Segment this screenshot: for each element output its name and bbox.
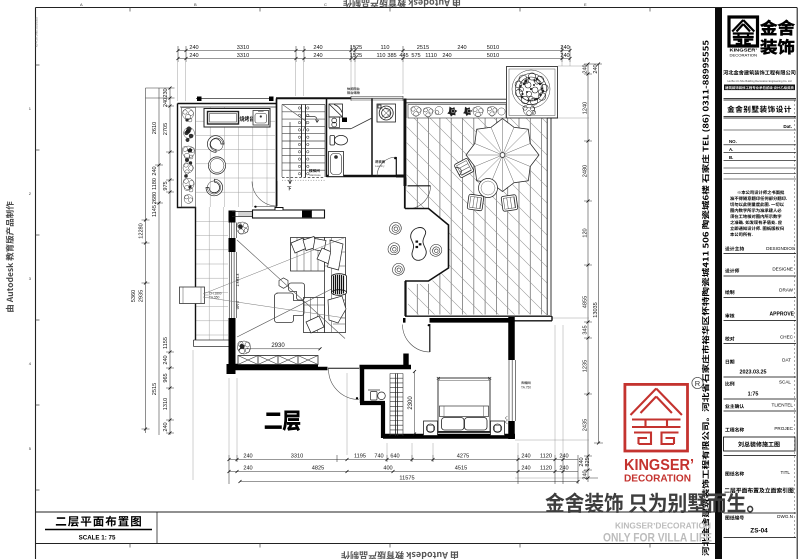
svg-text:B.: B. xyxy=(729,155,733,160)
svg-text:SCALE 1: 75: SCALE 1: 75 xyxy=(79,535,116,542)
svg-text:240: 240 xyxy=(243,454,252,460)
svg-text:11575: 11575 xyxy=(399,476,414,482)
svg-text:4825: 4825 xyxy=(312,466,324,472)
svg-text:2435: 2435 xyxy=(583,419,589,431)
svg-text:400: 400 xyxy=(383,466,392,472)
svg-text:1525: 1525 xyxy=(350,45,362,51)
svg-text:PROJEC: PROJEC xyxy=(774,426,793,431)
svg-text:KINGSERʼ: KINGSERʼ xyxy=(624,457,694,474)
svg-text:1180: 1180 xyxy=(152,178,158,190)
svg-text:240: 240 xyxy=(189,45,198,51)
svg-text:240: 240 xyxy=(163,98,169,107)
svg-text:1:75: 1:75 xyxy=(748,392,759,398)
svg-text:2300: 2300 xyxy=(408,396,414,410)
svg-text:385: 385 xyxy=(387,53,396,59)
svg-text:1240: 1240 xyxy=(583,102,589,114)
svg-text:Staircase: Staircase xyxy=(309,173,321,177)
svg-text:12280: 12280 xyxy=(139,223,145,239)
svg-text:ZS-04: ZS-04 xyxy=(750,528,768,535)
svg-text:KINGSERʼDECORATION: KINGSERʼDECORATION xyxy=(615,521,711,531)
svg-text:240: 240 xyxy=(560,45,569,51)
svg-text:4275: 4275 xyxy=(457,454,469,460)
svg-text:240: 240 xyxy=(152,166,158,175)
svg-text:4855: 4855 xyxy=(583,296,589,308)
svg-text:TA.750: TA.750 xyxy=(521,386,531,390)
svg-text:240: 240 xyxy=(163,355,169,364)
svg-text:1155: 1155 xyxy=(163,337,169,349)
svg-text:965: 965 xyxy=(163,373,169,382)
svg-text:740: 740 xyxy=(374,454,383,460)
svg-text:DRAW: DRAW xyxy=(779,288,794,293)
svg-text:640: 640 xyxy=(390,454,399,460)
svg-text:SCAL: SCAL xyxy=(779,380,791,385)
svg-text:5010: 5010 xyxy=(487,53,499,59)
svg-text:2610: 2610 xyxy=(152,122,158,134)
svg-text:A: A xyxy=(80,2,83,7)
svg-text:R: R xyxy=(695,379,701,388)
svg-text:445: 445 xyxy=(399,53,408,59)
svg-text:975: 975 xyxy=(163,181,169,190)
svg-text:B: B xyxy=(194,2,197,7)
svg-text:1145: 1145 xyxy=(152,205,158,217)
svg-text:240: 240 xyxy=(243,466,252,472)
svg-text:3310: 3310 xyxy=(291,454,303,460)
svg-text:TITL: TITL xyxy=(781,470,791,475)
svg-text:240: 240 xyxy=(457,45,466,51)
svg-text:2480: 2480 xyxy=(583,165,589,177)
svg-text:1525: 1525 xyxy=(350,53,362,59)
svg-text:DECORATION: DECORATION xyxy=(624,474,691,485)
svg-text:110: 110 xyxy=(377,53,386,59)
svg-text:3310: 3310 xyxy=(237,53,249,59)
svg-text:2930: 2930 xyxy=(271,343,285,349)
svg-text:DESIGNDIOS: DESIGNDIOS xyxy=(766,246,795,251)
svg-text:240: 240 xyxy=(593,64,599,73)
svg-text:NO.: NO. xyxy=(729,139,737,144)
svg-text:1235: 1235 xyxy=(583,360,589,372)
svg-text:240: 240 xyxy=(559,454,568,460)
svg-text:240: 240 xyxy=(442,53,451,59)
svg-text:825: 825 xyxy=(585,457,591,466)
svg-text:1120: 1120 xyxy=(540,454,552,460)
svg-text:DECORATION: DECORATION xyxy=(730,54,758,58)
svg-text:2680: 2680 xyxy=(152,192,158,204)
svg-text:Laundry: Laundry xyxy=(375,164,385,168)
svg-text:240: 240 xyxy=(163,422,169,431)
svg-text:240: 240 xyxy=(560,53,569,59)
svg-text:575: 575 xyxy=(411,53,420,59)
svg-text:230: 230 xyxy=(163,88,169,97)
svg-text:3310: 3310 xyxy=(237,45,249,51)
svg-text:240: 240 xyxy=(583,64,589,73)
svg-text:A.: A. xyxy=(729,147,733,152)
svg-text:240: 240 xyxy=(559,466,568,472)
svg-text:APPROVE: APPROVE xyxy=(770,312,795,318)
svg-text:2705: 2705 xyxy=(163,123,169,135)
svg-text:110: 110 xyxy=(381,45,390,51)
svg-text:1120: 1120 xyxy=(540,466,552,472)
svg-text:4515: 4515 xyxy=(455,466,467,472)
svg-text:13035: 13035 xyxy=(593,302,599,318)
svg-text:1195: 1195 xyxy=(354,454,366,460)
svg-text:DAT: DAT xyxy=(782,358,791,363)
svg-text:1110: 1110 xyxy=(425,53,437,59)
svg-text:240: 240 xyxy=(521,454,530,460)
svg-text:240: 240 xyxy=(313,45,322,51)
svg-text:2023.03.25: 2023.03.25 xyxy=(740,370,767,376)
svg-text:2515: 2515 xyxy=(417,45,429,51)
svg-text:C: C xyxy=(324,2,327,7)
svg-text:A2-PLOT.DWG 2023/03/25: A2-PLOT.DWG 2023/03/25 xyxy=(36,16,39,47)
svg-text:240: 240 xyxy=(521,466,530,472)
svg-text:5360: 5360 xyxy=(131,290,137,302)
svg-text:He Bei Jin She Building Decora: He Bei Jin She Building Decoration Engin… xyxy=(727,79,792,83)
svg-text:DWG.N: DWG.N xyxy=(777,514,793,519)
svg-text:CHEC: CHEC xyxy=(780,335,794,340)
svg-text:E: E xyxy=(584,2,587,7)
svg-text:240: 240 xyxy=(313,53,322,59)
svg-text:KINGSERʼ: KINGSERʼ xyxy=(730,48,758,53)
svg-text:345: 345 xyxy=(583,325,589,334)
svg-text:ONLY FOR VILLA LIFE: ONLY FOR VILLA LIFE xyxy=(603,531,712,545)
svg-text:TLIENTEL: TLIENTEL xyxy=(772,403,794,408)
svg-text:1310: 1310 xyxy=(163,398,169,410)
svg-text:2515: 2515 xyxy=(152,383,158,395)
svg-text:2935: 2935 xyxy=(139,290,145,302)
svg-text:120: 120 xyxy=(583,228,589,237)
svg-text:5010: 5010 xyxy=(487,45,499,51)
svg-text:240: 240 xyxy=(583,470,589,479)
svg-text:240: 240 xyxy=(189,53,198,59)
svg-text:DESIGNE: DESIGNE xyxy=(772,267,793,272)
svg-text:Dat.: Dat. xyxy=(783,124,792,129)
